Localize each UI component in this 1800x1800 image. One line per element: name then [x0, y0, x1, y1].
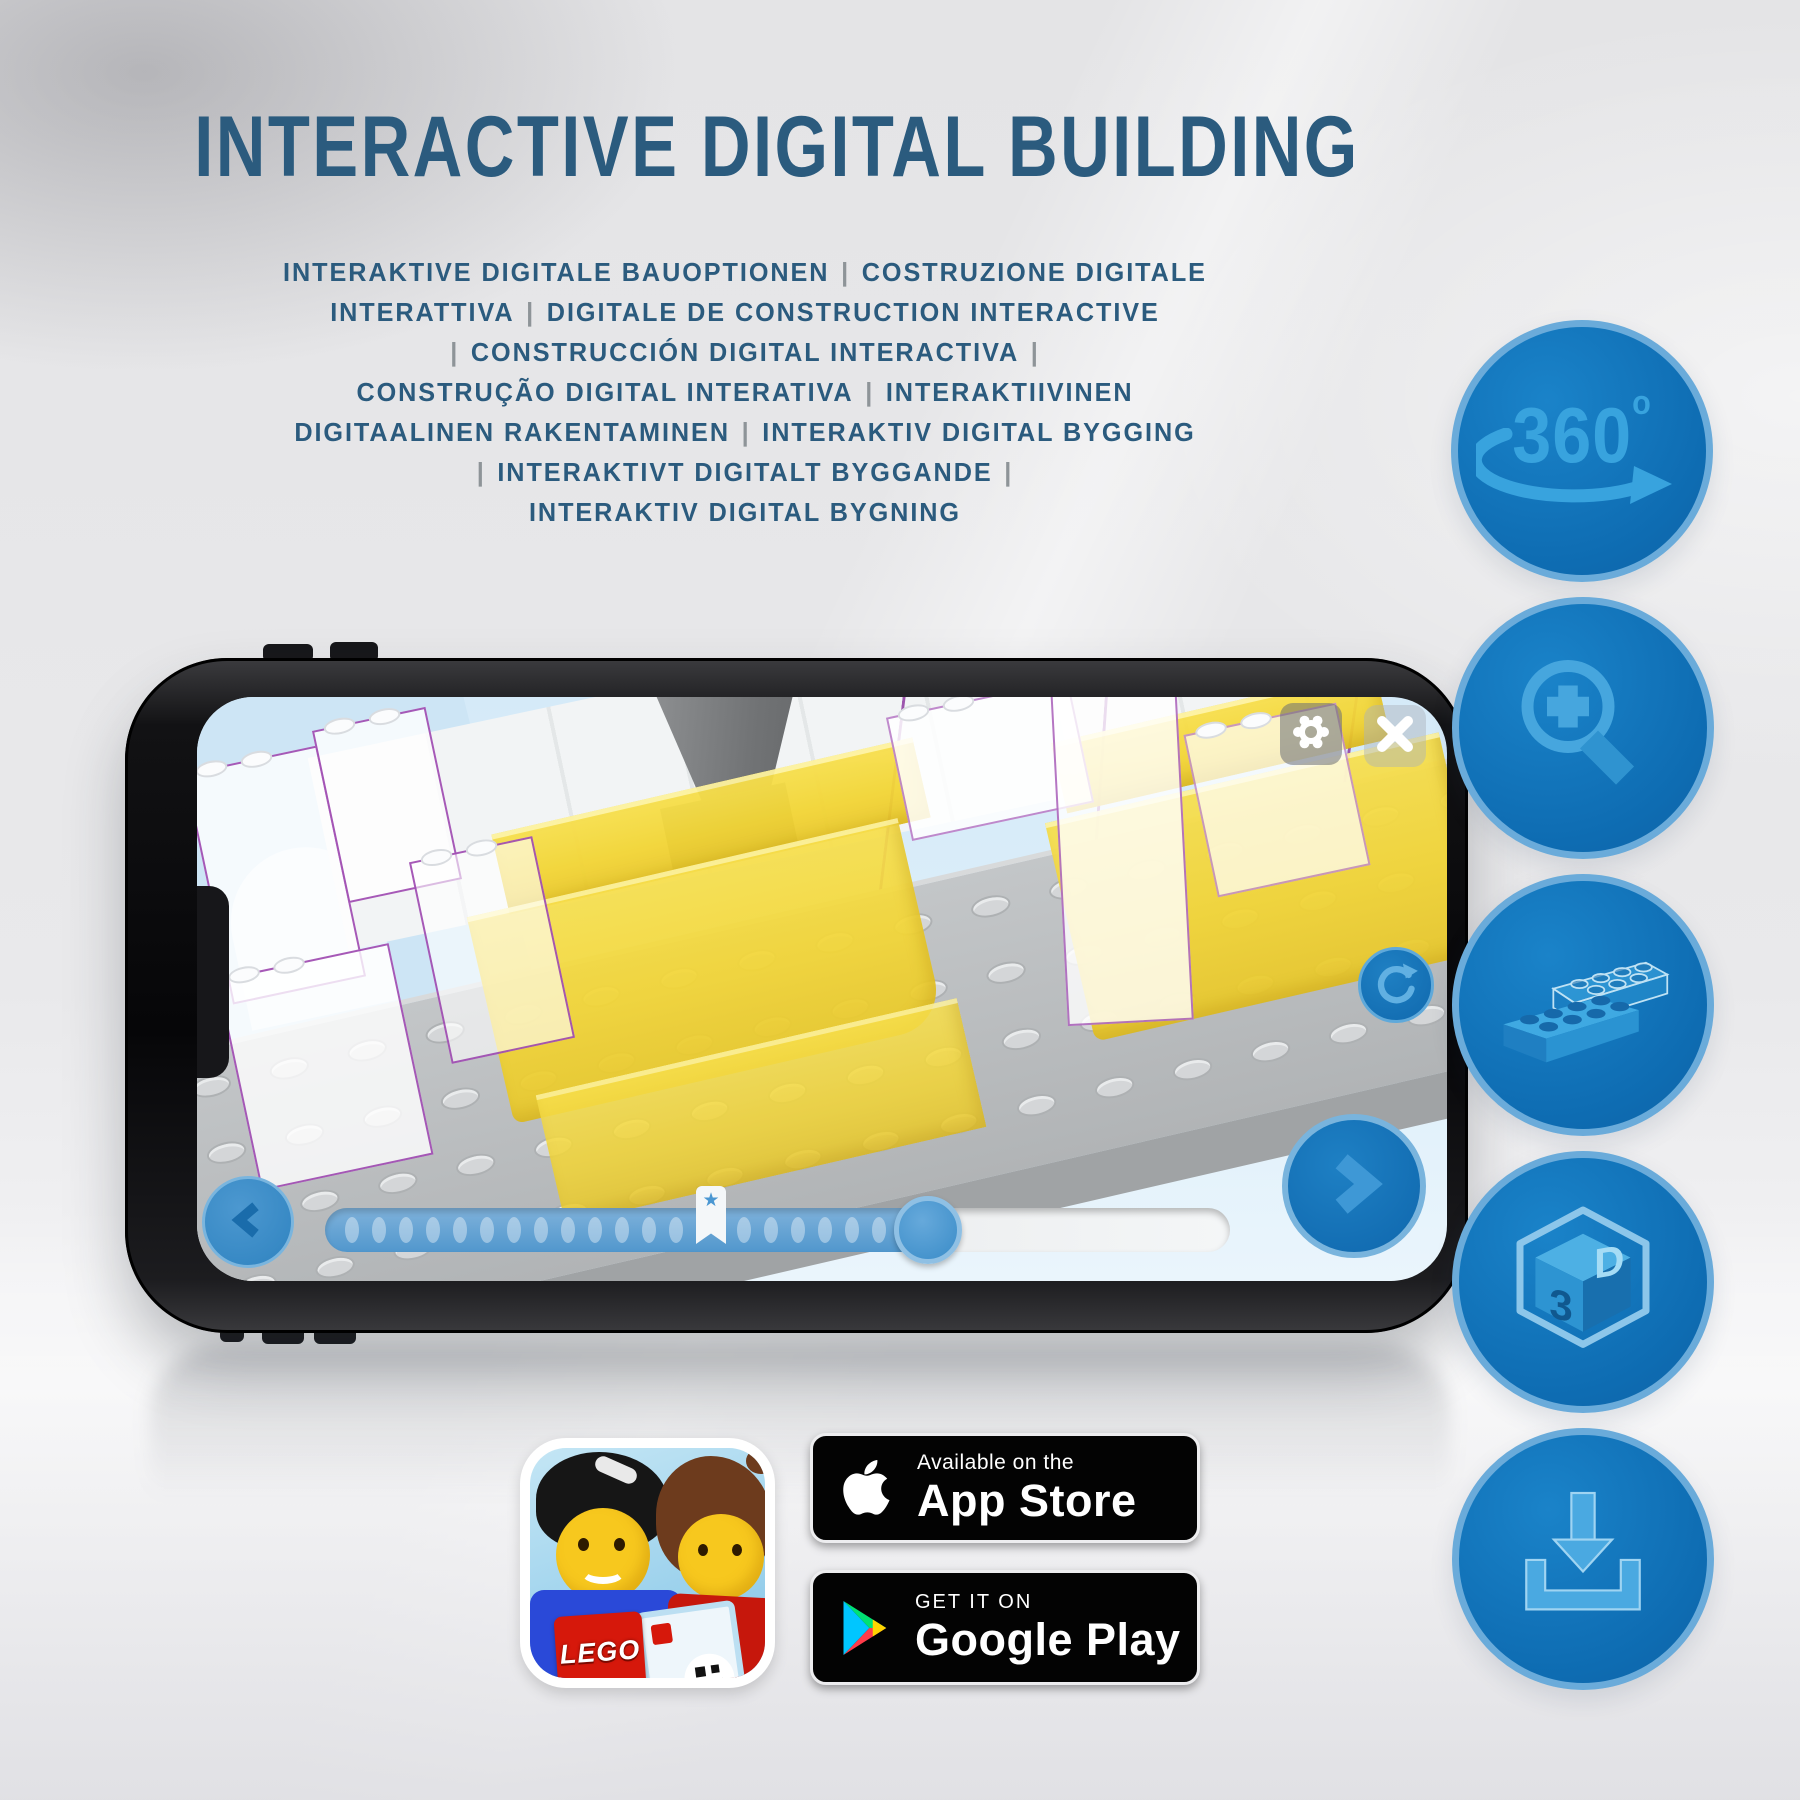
svg-text:D: D	[1594, 1235, 1624, 1287]
feature-3d-view: 3 D	[1452, 1151, 1714, 1413]
phone-reflection	[150, 1346, 1450, 1536]
lego-logo: LEGO	[553, 1611, 646, 1678]
progress-dot	[764, 1217, 778, 1243]
progress-dot	[737, 1217, 751, 1243]
app-store-text: Available on the App Store	[917, 1451, 1137, 1525]
progress-dot	[507, 1217, 521, 1243]
baseplate-stud	[1093, 1072, 1137, 1101]
feature-download	[1452, 1428, 1714, 1690]
next-step-button[interactable]	[1282, 1114, 1426, 1258]
360-degrees-icon: 360o	[1482, 376, 1682, 526]
progress-dot	[642, 1217, 656, 1243]
subtitle-line: DIGITAALINEN RAKENTAMINEN|INTERAKTIV DIG…	[22, 412, 1467, 452]
progress-dot	[561, 1217, 575, 1243]
subtitle-line: |CONSTRUCCIÓN DIGITAL INTERACTIVA|	[22, 332, 1467, 372]
baseplate-stud	[439, 1084, 483, 1113]
google-play-icon	[839, 1598, 893, 1658]
progress-dot	[534, 1217, 548, 1243]
baseplate-stud	[1000, 1024, 1044, 1053]
subtitle-line: INTERAKTIVE DIGITALE BAUOPTIONEN|COSTRUZ…	[22, 252, 1467, 292]
baseplate-stud	[969, 892, 1013, 921]
instruction-card	[635, 1600, 750, 1678]
close-button[interactable]	[1364, 705, 1426, 767]
subtitle-line: INTERATTIVA|DIGITALE DE CONSTRUCTION INT…	[22, 292, 1467, 332]
progress-dot	[588, 1217, 602, 1243]
subtitle-line: |INTERAKTIVT DIGITALT BYGGANDE|	[22, 452, 1467, 492]
subtitle-line: CONSTRUÇÃO DIGITAL INTERATIVA|INTERAKTII…	[22, 372, 1467, 412]
bricks-icon	[1494, 928, 1672, 1083]
multilanguage-subtitle: INTERAKTIVE DIGITALE BAUOPTIONEN|COSTRUZ…	[0, 252, 1490, 532]
baseplate-stud	[984, 958, 1028, 987]
phone: ★	[125, 658, 1468, 1333]
progress-dot	[615, 1217, 629, 1243]
3d-cube-icon: 3 D	[1499, 1203, 1667, 1362]
baseplate-stud	[205, 1138, 249, 1167]
lego-app-icon: LEGO	[520, 1438, 775, 1688]
progress-dot	[480, 1217, 494, 1243]
baseplate-stud	[1015, 1090, 1059, 1119]
baseplate-stud	[376, 1168, 420, 1197]
progress-dot	[345, 1217, 359, 1243]
progress-fill	[325, 1208, 935, 1252]
google-play-text: GET IT ON Google Play	[915, 1591, 1181, 1664]
lego-app-icon-art: LEGO	[530, 1448, 765, 1678]
baseplate-stud	[1327, 1018, 1371, 1047]
app-screen: ★	[197, 697, 1447, 1281]
feature-bricks	[1452, 874, 1714, 1136]
rotate-icon	[1373, 960, 1419, 1011]
chevron-left-icon	[228, 1200, 268, 1245]
apple-icon	[839, 1455, 895, 1521]
previous-step-button[interactable]	[202, 1176, 294, 1268]
feature-zoom	[1452, 597, 1714, 859]
baseplate-stud	[235, 1270, 279, 1281]
qr-code	[681, 1650, 737, 1678]
progress-dot	[872, 1217, 886, 1243]
rotate-model-button[interactable]	[1358, 947, 1434, 1023]
subtitle-line: INTERAKTIV DIGITAL BYGNING	[22, 492, 1467, 532]
download-icon	[1503, 1484, 1663, 1635]
brick-stud	[941, 697, 976, 714]
feature-360-view: 360o	[1451, 320, 1713, 582]
progress-dot	[845, 1217, 859, 1243]
settings-button[interactable]	[1280, 703, 1342, 765]
progress-dot	[453, 1217, 467, 1243]
poster: INTERACTIVE DIGITAL BUILDING INTERAKTIVE…	[0, 0, 1800, 1800]
baseplate-stud	[1171, 1054, 1215, 1083]
progress-dot	[426, 1217, 440, 1243]
phone-camera-notch	[197, 886, 229, 1078]
baseplate-stud	[313, 1252, 357, 1281]
scene-white-pillar	[1050, 697, 1194, 1026]
progress-dot	[818, 1217, 832, 1243]
progress-dot	[791, 1217, 805, 1243]
progress-dot	[669, 1217, 683, 1243]
minifig-boy-face	[556, 1508, 650, 1602]
progress-dot	[399, 1217, 413, 1243]
baseplate-stud	[454, 1150, 498, 1179]
chevron-right-icon	[1321, 1151, 1387, 1222]
minifig-girl-face	[678, 1514, 764, 1600]
app-store-badge[interactable]: Available on the App Store	[810, 1433, 1200, 1543]
svg-text:3: 3	[1549, 1279, 1572, 1330]
build-progress-bar[interactable]: ★	[325, 1208, 1230, 1252]
page-title: INTERACTIVE DIGITAL BUILDING	[155, 104, 1398, 190]
google-play-badge[interactable]: GET IT ON Google Play	[810, 1570, 1200, 1685]
baseplate-stud	[1249, 1036, 1293, 1065]
zoom-in-icon	[1508, 651, 1658, 806]
progress-thumb[interactable]	[894, 1196, 962, 1264]
gear-icon	[1291, 712, 1331, 757]
close-icon	[1375, 714, 1415, 759]
progress-dot	[372, 1217, 386, 1243]
